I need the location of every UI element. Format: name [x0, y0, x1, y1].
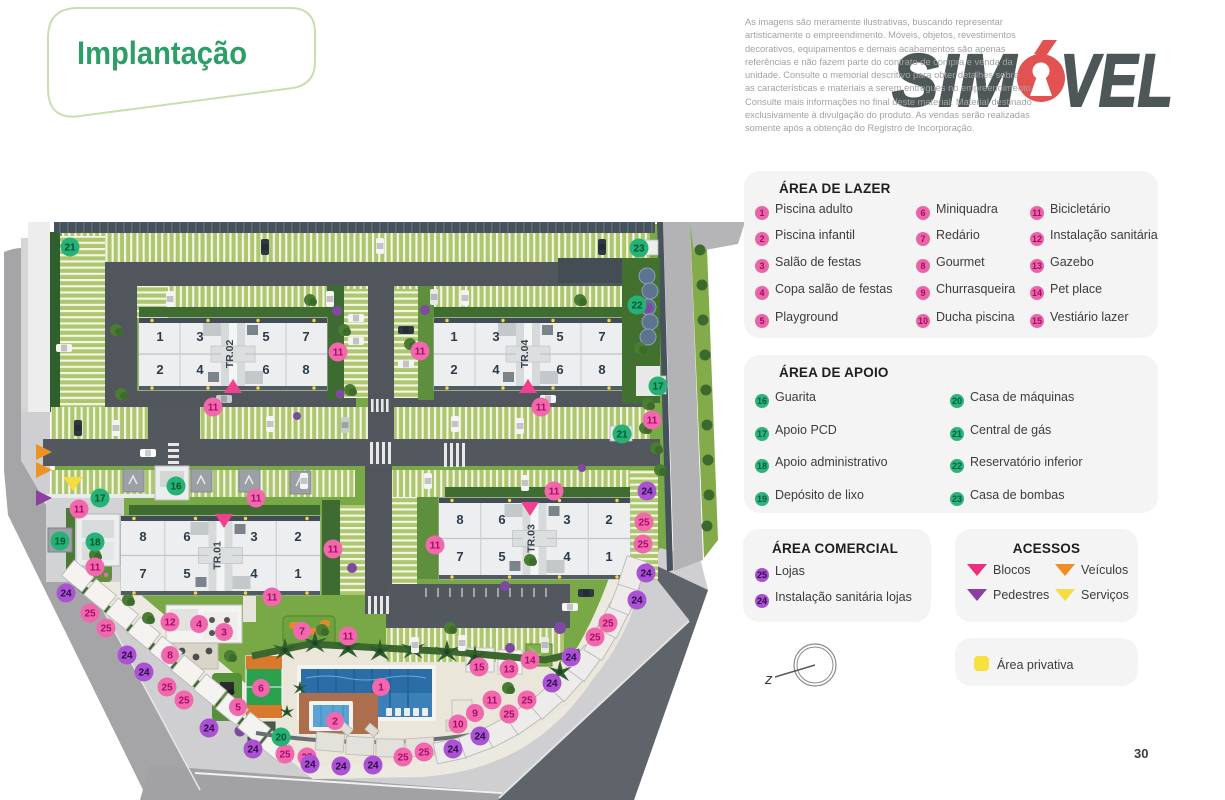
svg-text:6: 6 [498, 512, 505, 527]
svg-text:25: 25 [521, 696, 533, 707]
svg-text:3: 3 [563, 512, 570, 527]
svg-text:8: 8 [598, 362, 605, 377]
svg-text:25: 25 [503, 710, 515, 721]
svg-text:4: 4 [250, 566, 258, 581]
svg-text:12: 12 [164, 618, 176, 629]
svg-text:2: 2 [450, 362, 457, 377]
svg-text:7: 7 [299, 626, 305, 638]
svg-text:TR.01: TR.01 [212, 541, 224, 570]
svg-text:24: 24 [474, 732, 486, 743]
svg-text:25: 25 [161, 683, 173, 694]
svg-text:13: 13 [503, 665, 515, 676]
svg-text:11: 11 [536, 403, 547, 414]
svg-text:11: 11 [415, 347, 426, 358]
svg-text:17: 17 [94, 494, 106, 505]
svg-text:5: 5 [262, 329, 269, 344]
svg-text:1: 1 [450, 329, 457, 344]
svg-text:11: 11 [333, 348, 344, 359]
svg-text:11: 11 [430, 541, 441, 552]
svg-text:18: 18 [89, 538, 101, 549]
svg-text:25: 25 [589, 633, 601, 644]
svg-text:14: 14 [524, 656, 536, 667]
svg-text:20: 20 [275, 733, 287, 744]
svg-text:8: 8 [167, 650, 173, 662]
svg-text:7: 7 [456, 549, 463, 564]
svg-text:17: 17 [652, 382, 664, 393]
svg-text:19: 19 [54, 537, 66, 548]
svg-text:2: 2 [332, 716, 338, 728]
svg-text:11: 11 [74, 505, 85, 516]
svg-text:11: 11 [90, 563, 101, 574]
svg-text:25: 25 [637, 540, 649, 551]
svg-text:11: 11 [267, 593, 278, 604]
svg-text:11: 11 [251, 494, 262, 505]
svg-text:5: 5 [556, 329, 563, 344]
svg-text:2: 2 [156, 362, 163, 377]
svg-text:1: 1 [378, 682, 384, 694]
svg-text:3: 3 [492, 329, 499, 344]
svg-text:11: 11 [487, 696, 498, 707]
svg-text:5: 5 [235, 702, 241, 714]
svg-text:4: 4 [492, 362, 500, 377]
svg-text:24: 24 [60, 589, 72, 600]
svg-text:6: 6 [258, 683, 264, 695]
svg-text:TR.02: TR.02 [224, 340, 236, 369]
svg-text:10: 10 [452, 720, 464, 731]
svg-text:8: 8 [302, 362, 309, 377]
svg-text:24: 24 [447, 745, 459, 756]
svg-text:24: 24 [138, 668, 150, 679]
svg-text:3: 3 [196, 329, 203, 344]
svg-text:23: 23 [633, 244, 645, 255]
svg-text:6: 6 [262, 362, 269, 377]
svg-text:24: 24 [641, 487, 653, 498]
svg-text:8: 8 [456, 512, 463, 527]
svg-text:8: 8 [139, 529, 146, 544]
svg-text:1: 1 [156, 329, 163, 344]
svg-text:25: 25 [397, 753, 409, 764]
svg-text:25: 25 [602, 619, 614, 630]
svg-text:3: 3 [250, 529, 257, 544]
svg-text:16: 16 [170, 482, 182, 493]
svg-text:TR.03: TR.03 [526, 524, 538, 553]
svg-text:5: 5 [498, 549, 505, 564]
svg-text:z: z [764, 671, 773, 688]
svg-text:25: 25 [418, 748, 430, 759]
svg-text:7: 7 [598, 329, 605, 344]
svg-text:VEL: VEL [1060, 39, 1173, 122]
svg-text:24: 24 [121, 651, 133, 662]
svg-text:3: 3 [221, 627, 227, 639]
svg-text:6: 6 [556, 362, 563, 377]
svg-text:2: 2 [605, 512, 612, 527]
svg-text:11: 11 [343, 632, 354, 643]
svg-text:24: 24 [640, 569, 652, 580]
svg-text:25: 25 [84, 609, 96, 620]
svg-text:TR.04: TR.04 [519, 340, 531, 369]
svg-text:21: 21 [64, 243, 76, 254]
svg-text:7: 7 [302, 329, 309, 344]
svg-text:11: 11 [328, 545, 339, 556]
svg-text:25: 25 [100, 624, 112, 635]
svg-text:24: 24 [335, 762, 347, 773]
svg-text:25: 25 [279, 750, 291, 761]
svg-text:24: 24 [631, 596, 643, 607]
svg-text:4: 4 [196, 619, 202, 631]
svg-text:11: 11 [208, 403, 219, 414]
svg-text:4: 4 [196, 362, 204, 377]
svg-text:5: 5 [183, 566, 190, 581]
svg-text:11: 11 [647, 416, 658, 427]
svg-text:2: 2 [294, 529, 301, 544]
svg-text:9: 9 [472, 708, 478, 720]
svg-text:21: 21 [616, 430, 628, 441]
svg-text:1: 1 [605, 549, 612, 564]
svg-text:1: 1 [294, 566, 301, 581]
svg-text:11: 11 [549, 487, 560, 498]
svg-text:24: 24 [203, 724, 215, 735]
svg-text:4: 4 [563, 549, 571, 564]
svg-text:15: 15 [473, 663, 485, 674]
svg-text:24: 24 [367, 761, 379, 772]
svg-text:6: 6 [183, 529, 190, 544]
svg-text:24: 24 [565, 653, 577, 664]
svg-text:25: 25 [178, 696, 190, 707]
svg-text:25: 25 [638, 518, 650, 529]
svg-text:24: 24 [304, 760, 316, 771]
svg-text:22: 22 [631, 301, 643, 312]
svg-text:24: 24 [546, 679, 558, 690]
svg-text:7: 7 [139, 566, 146, 581]
svg-text:24: 24 [247, 745, 259, 756]
